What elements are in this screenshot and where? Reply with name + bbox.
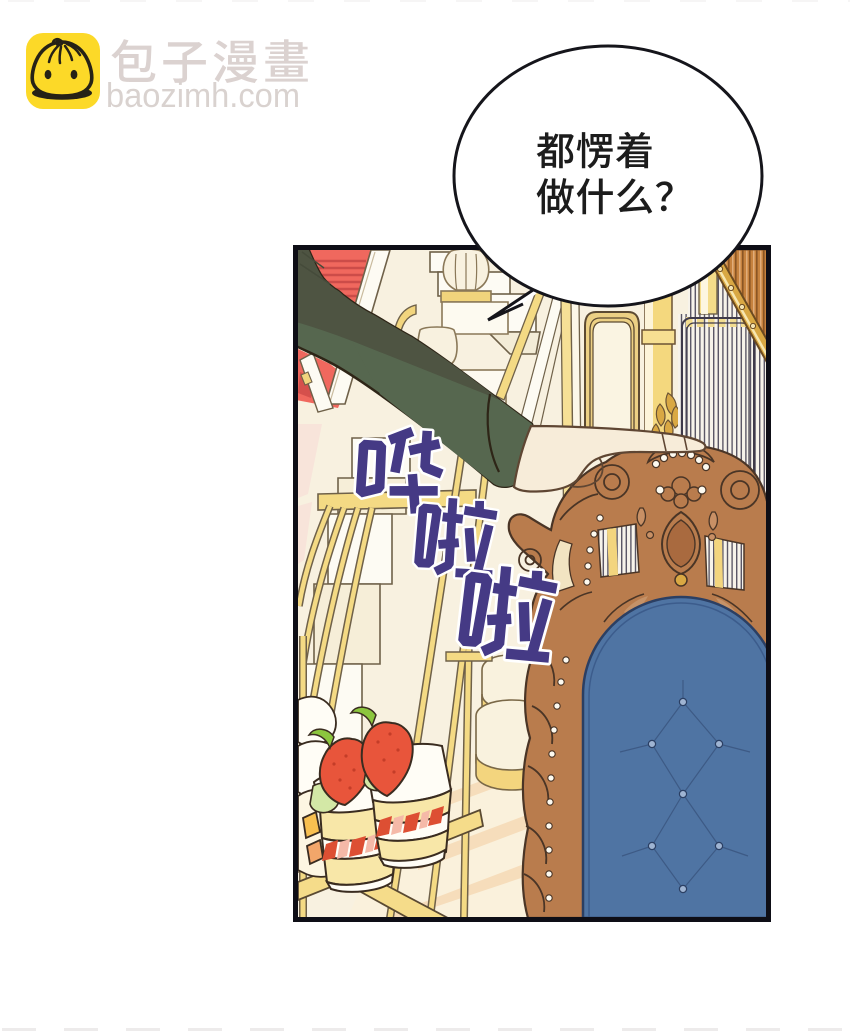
- svg-text:baozimh.com: baozimh.com: [106, 77, 300, 115]
